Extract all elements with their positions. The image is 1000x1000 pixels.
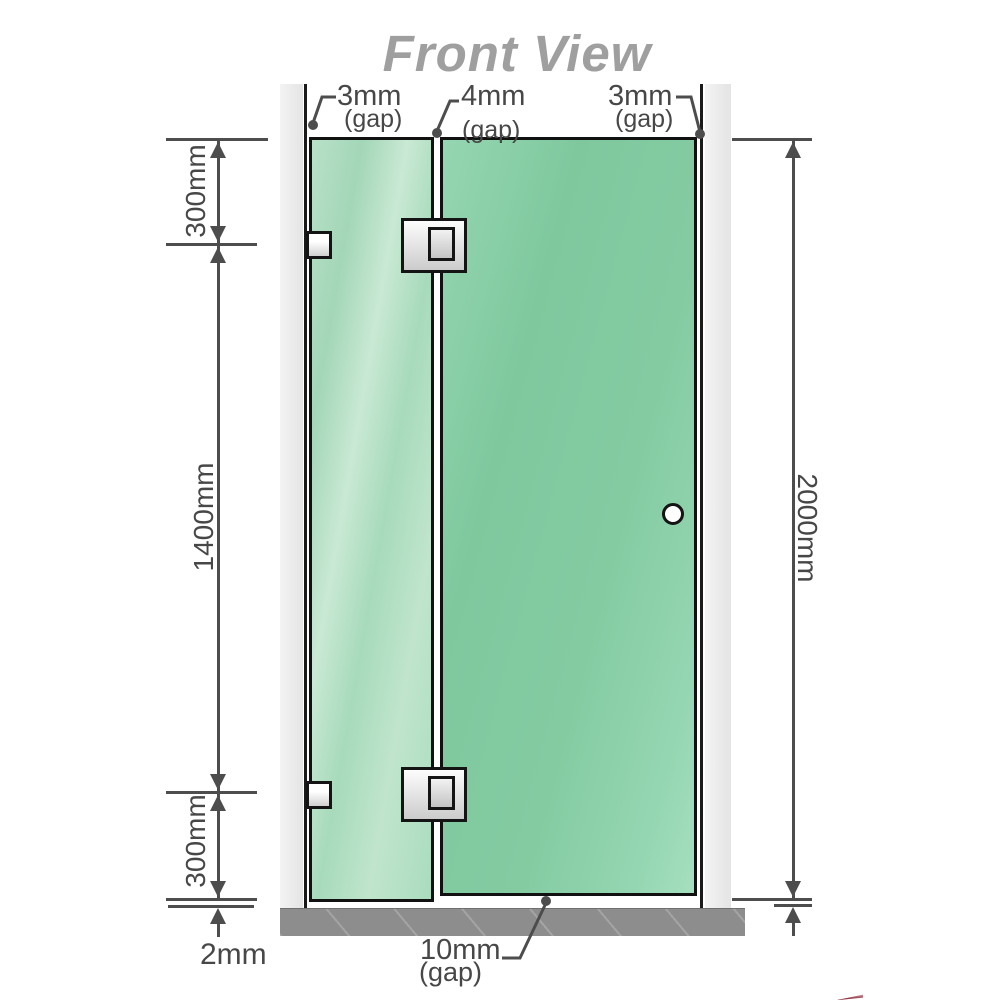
bottom-hinge-plate bbox=[428, 776, 455, 810]
leader-dot-bottom-gap bbox=[541, 896, 551, 906]
dim-arrow bbox=[210, 247, 226, 263]
gap-caption-4mm: (gap) bbox=[462, 118, 520, 143]
dim-label-1400mm: 1400mm bbox=[189, 437, 219, 597]
door-glass-panel bbox=[440, 137, 697, 896]
floor-gap-arrow-stem-right bbox=[792, 921, 795, 936]
gap-label-4mm: 4mm bbox=[461, 82, 525, 111]
left-wall bbox=[280, 84, 303, 908]
shower-screen-front-view-diagram: Front View 300mm 1400mm 300mm 2000 bbox=[0, 0, 1000, 1000]
dim-label-300mm-top: 300mm bbox=[181, 121, 211, 261]
extension-tick-top-right bbox=[732, 138, 812, 141]
dim-arrow bbox=[210, 774, 226, 790]
right-wall-edge-line bbox=[700, 84, 703, 908]
gap-caption-10mm: (gap) bbox=[419, 959, 482, 986]
dim-arrow bbox=[210, 881, 226, 897]
extension-tick-300-top bbox=[166, 243, 257, 246]
gap-caption-3mm-left: (gap) bbox=[344, 107, 402, 132]
diagram-title: Front View bbox=[362, 24, 672, 83]
dim-arrow bbox=[785, 881, 801, 897]
dim-arrow bbox=[785, 142, 801, 158]
bottom-wall-bracket bbox=[306, 781, 332, 809]
extension-tick-glass-bottom-left bbox=[166, 898, 257, 901]
dim-arrow bbox=[210, 795, 226, 811]
right-wall bbox=[705, 84, 731, 908]
extension-tick-glass-bottom-right bbox=[732, 898, 812, 901]
logo-fragment bbox=[837, 994, 863, 1000]
floor-gap-arrow-stem-left bbox=[217, 922, 220, 937]
dim-label-2mm: 2mm bbox=[200, 940, 267, 970]
door-knob bbox=[662, 503, 684, 525]
floor-base bbox=[280, 908, 745, 936]
dim-arrow bbox=[210, 226, 226, 242]
bottom-hinge bbox=[401, 767, 467, 822]
dim-arrow bbox=[210, 142, 226, 158]
dim-label-2000mm: 2000mm bbox=[792, 448, 822, 608]
leader-dot-left-gap bbox=[308, 120, 318, 130]
dim-label-300mm-bottom: 300mm bbox=[181, 771, 211, 911]
gap-caption-3mm-right: (gap) bbox=[615, 107, 673, 132]
top-hinge-plate bbox=[428, 227, 455, 261]
top-wall-bracket bbox=[306, 231, 332, 259]
top-hinge bbox=[401, 218, 467, 273]
